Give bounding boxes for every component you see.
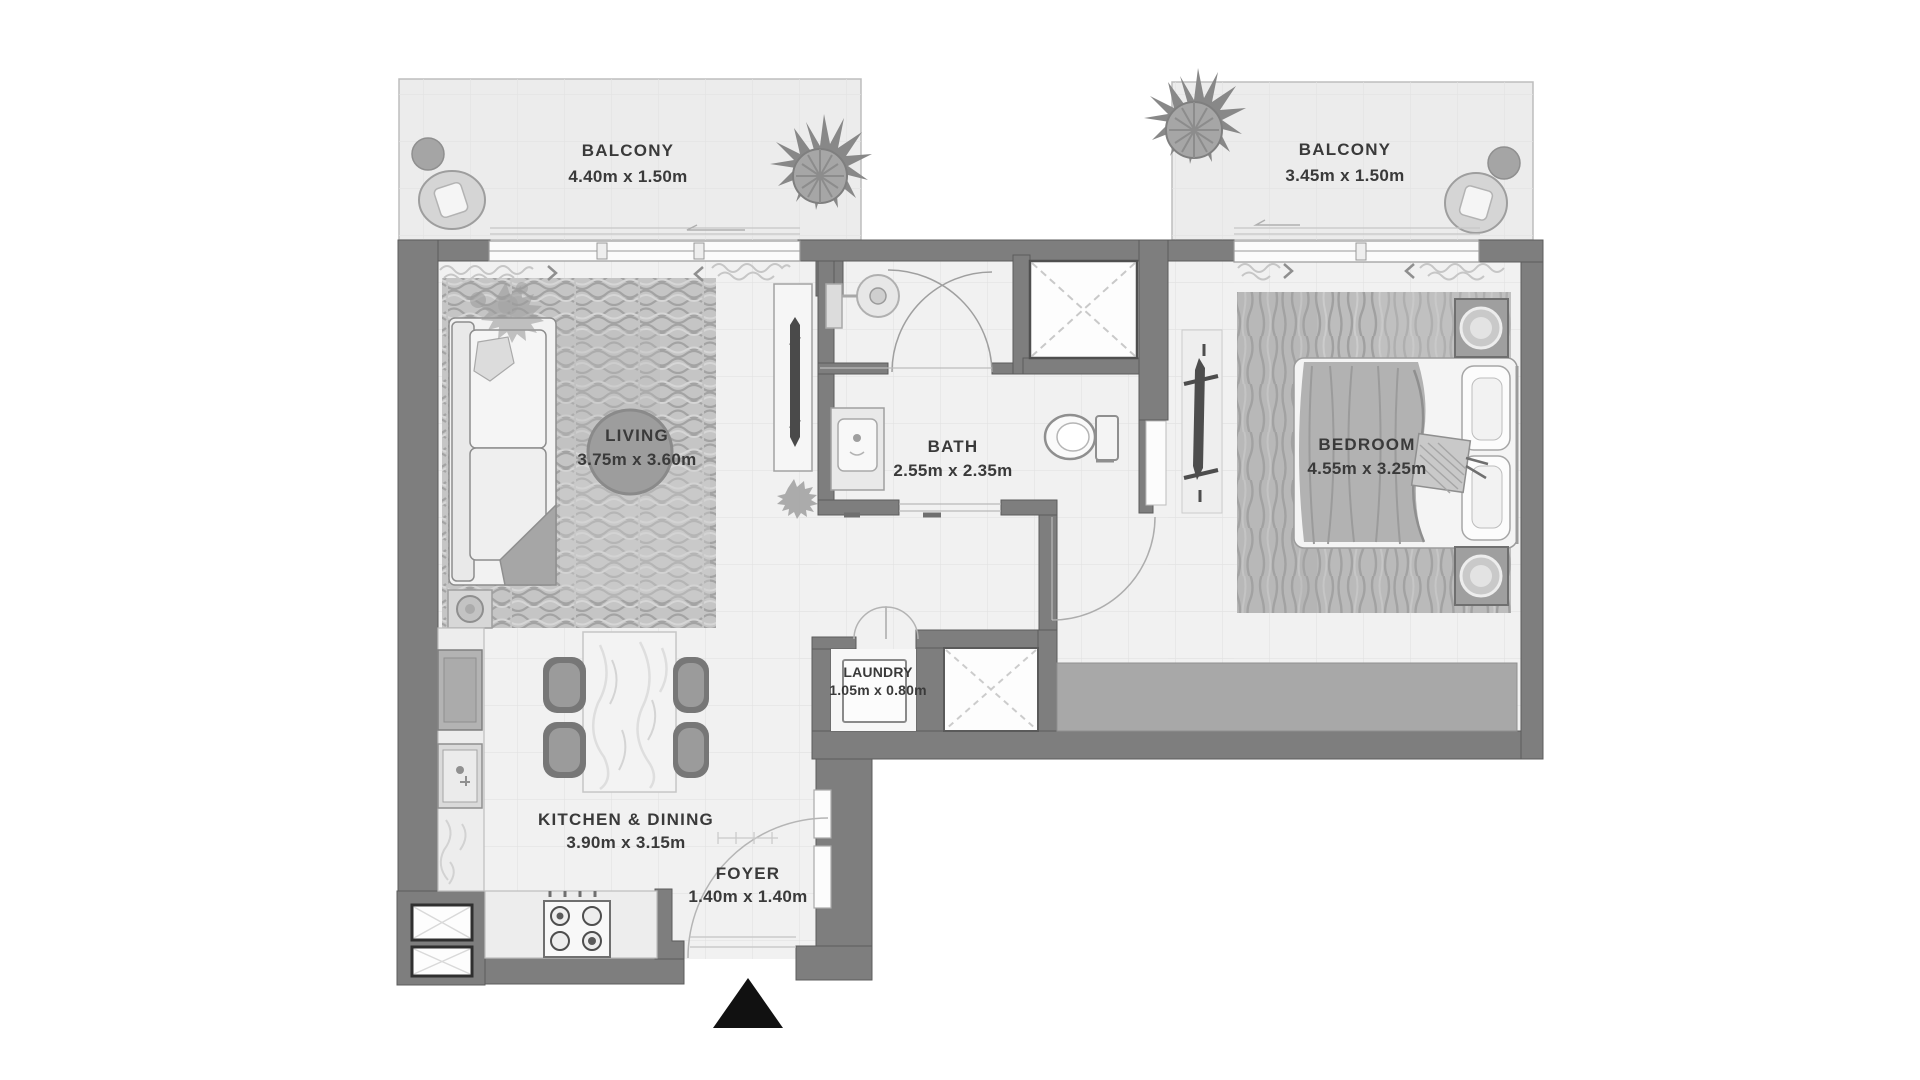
svg-text:3.75m x 3.60m: 3.75m x 3.60m <box>577 450 696 469</box>
svg-text:4.55m x 3.25m: 4.55m x 3.25m <box>1307 459 1426 478</box>
svg-text:FOYER: FOYER <box>716 864 781 883</box>
svg-text:2.55m x 2.35m: 2.55m x 2.35m <box>893 461 1012 480</box>
svg-text:BALCONY: BALCONY <box>1299 140 1391 159</box>
svg-text:3.45m x 1.50m: 3.45m x 1.50m <box>1285 166 1404 185</box>
svg-text:BEDROOM: BEDROOM <box>1318 435 1415 454</box>
svg-text:4.40m x 1.50m: 4.40m x 1.50m <box>568 167 687 186</box>
svg-text:BALCONY: BALCONY <box>582 141 674 160</box>
svg-text:LIVING: LIVING <box>605 426 669 445</box>
svg-text:BATH: BATH <box>928 437 979 456</box>
svg-text:1.05m x 0.80m: 1.05m x 0.80m <box>829 682 927 698</box>
svg-text:KITCHEN & DINING: KITCHEN & DINING <box>538 810 714 829</box>
svg-text:LAUNDRY: LAUNDRY <box>843 664 913 680</box>
svg-text:3.90m x 3.15m: 3.90m x 3.15m <box>566 833 685 852</box>
svg-text:1.40m x 1.40m: 1.40m x 1.40m <box>688 887 807 906</box>
